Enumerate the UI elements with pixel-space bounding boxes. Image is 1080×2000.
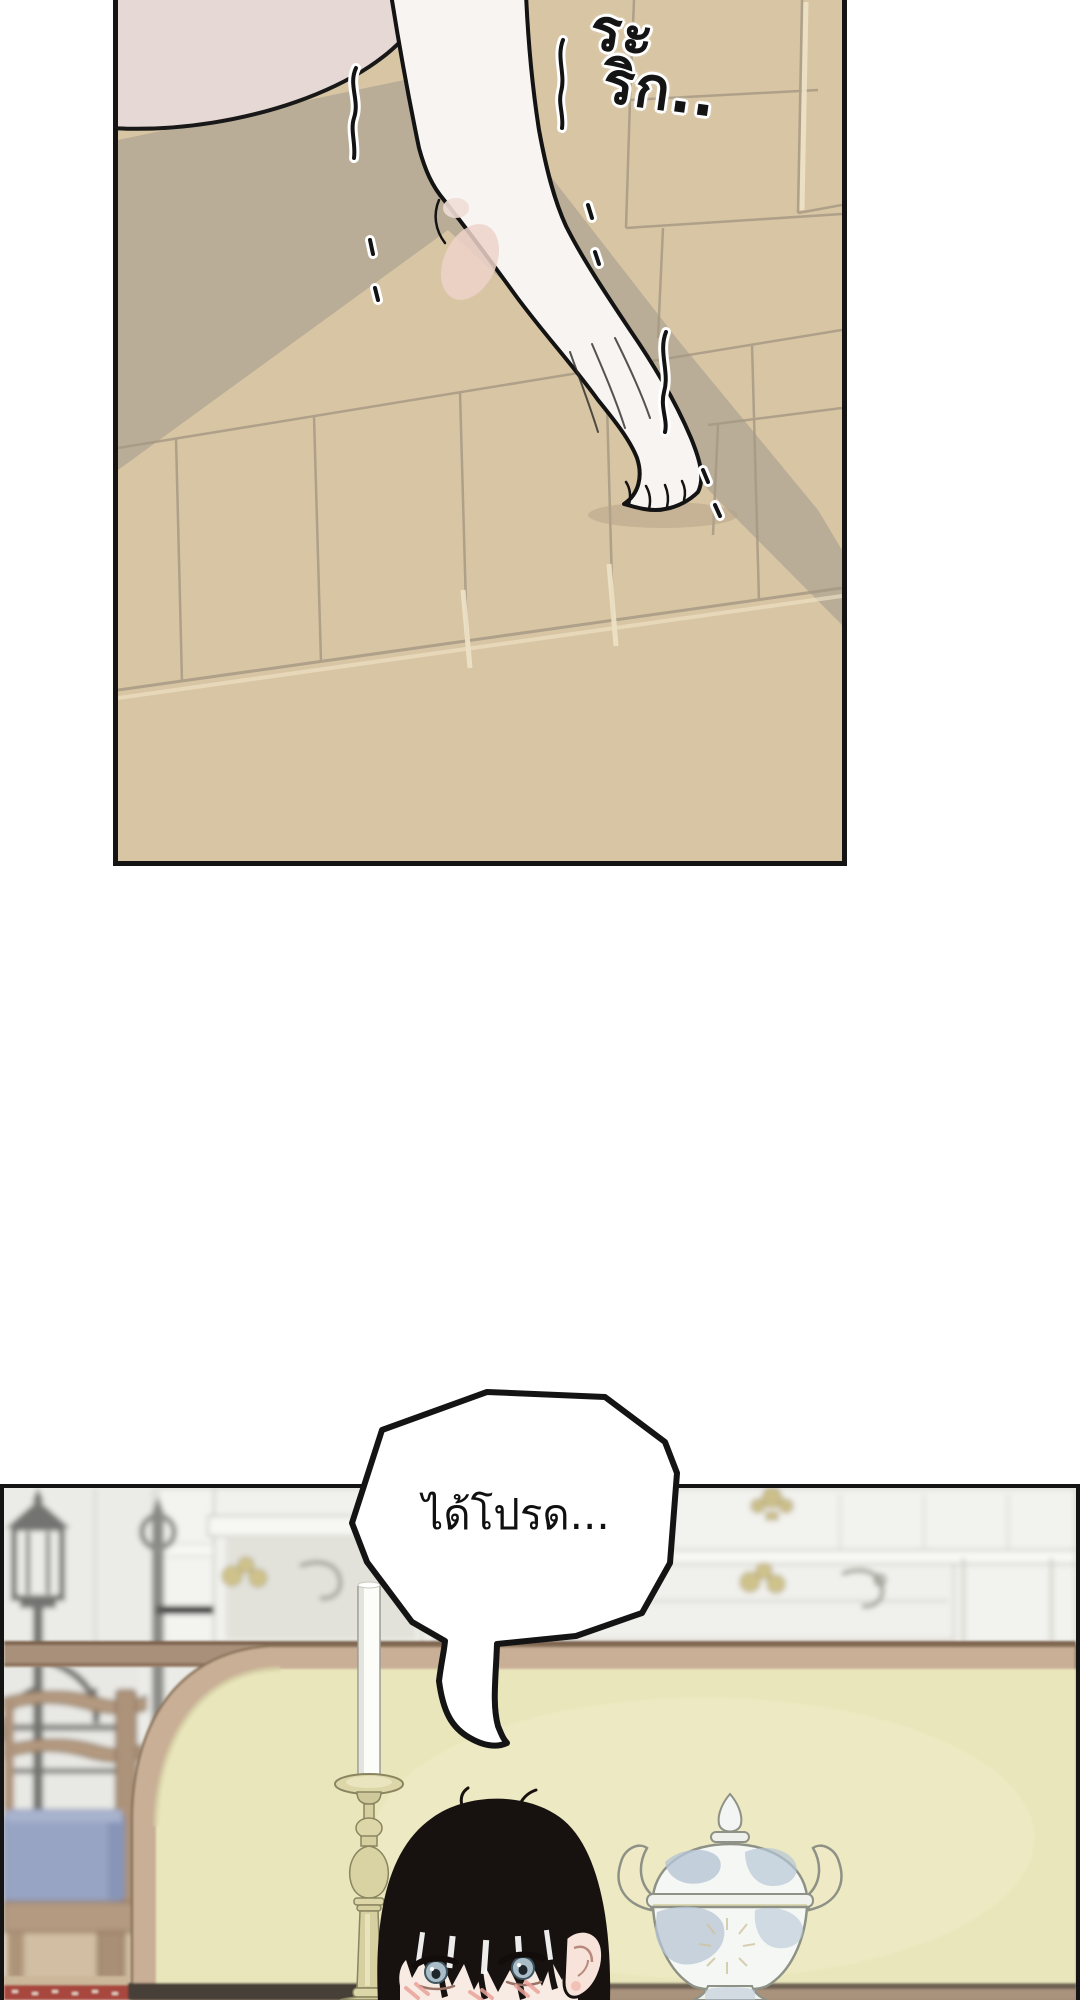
panel-foot-scene: ระริก.. bbox=[113, 0, 847, 866]
speech-bubble-shape bbox=[346, 1386, 686, 1766]
chair-cushion bbox=[4, 1810, 124, 1904]
comic-page: ระริก.. bbox=[0, 0, 1080, 2000]
speech-bubble: ได้โปรด... bbox=[346, 1386, 686, 1766]
stem-bulge bbox=[350, 1846, 389, 1898]
foot-scene-art bbox=[118, 0, 842, 861]
carpet-strip bbox=[4, 1985, 128, 2000]
speech-bubble-text: ได้โปรด... bbox=[382, 1482, 650, 1548]
